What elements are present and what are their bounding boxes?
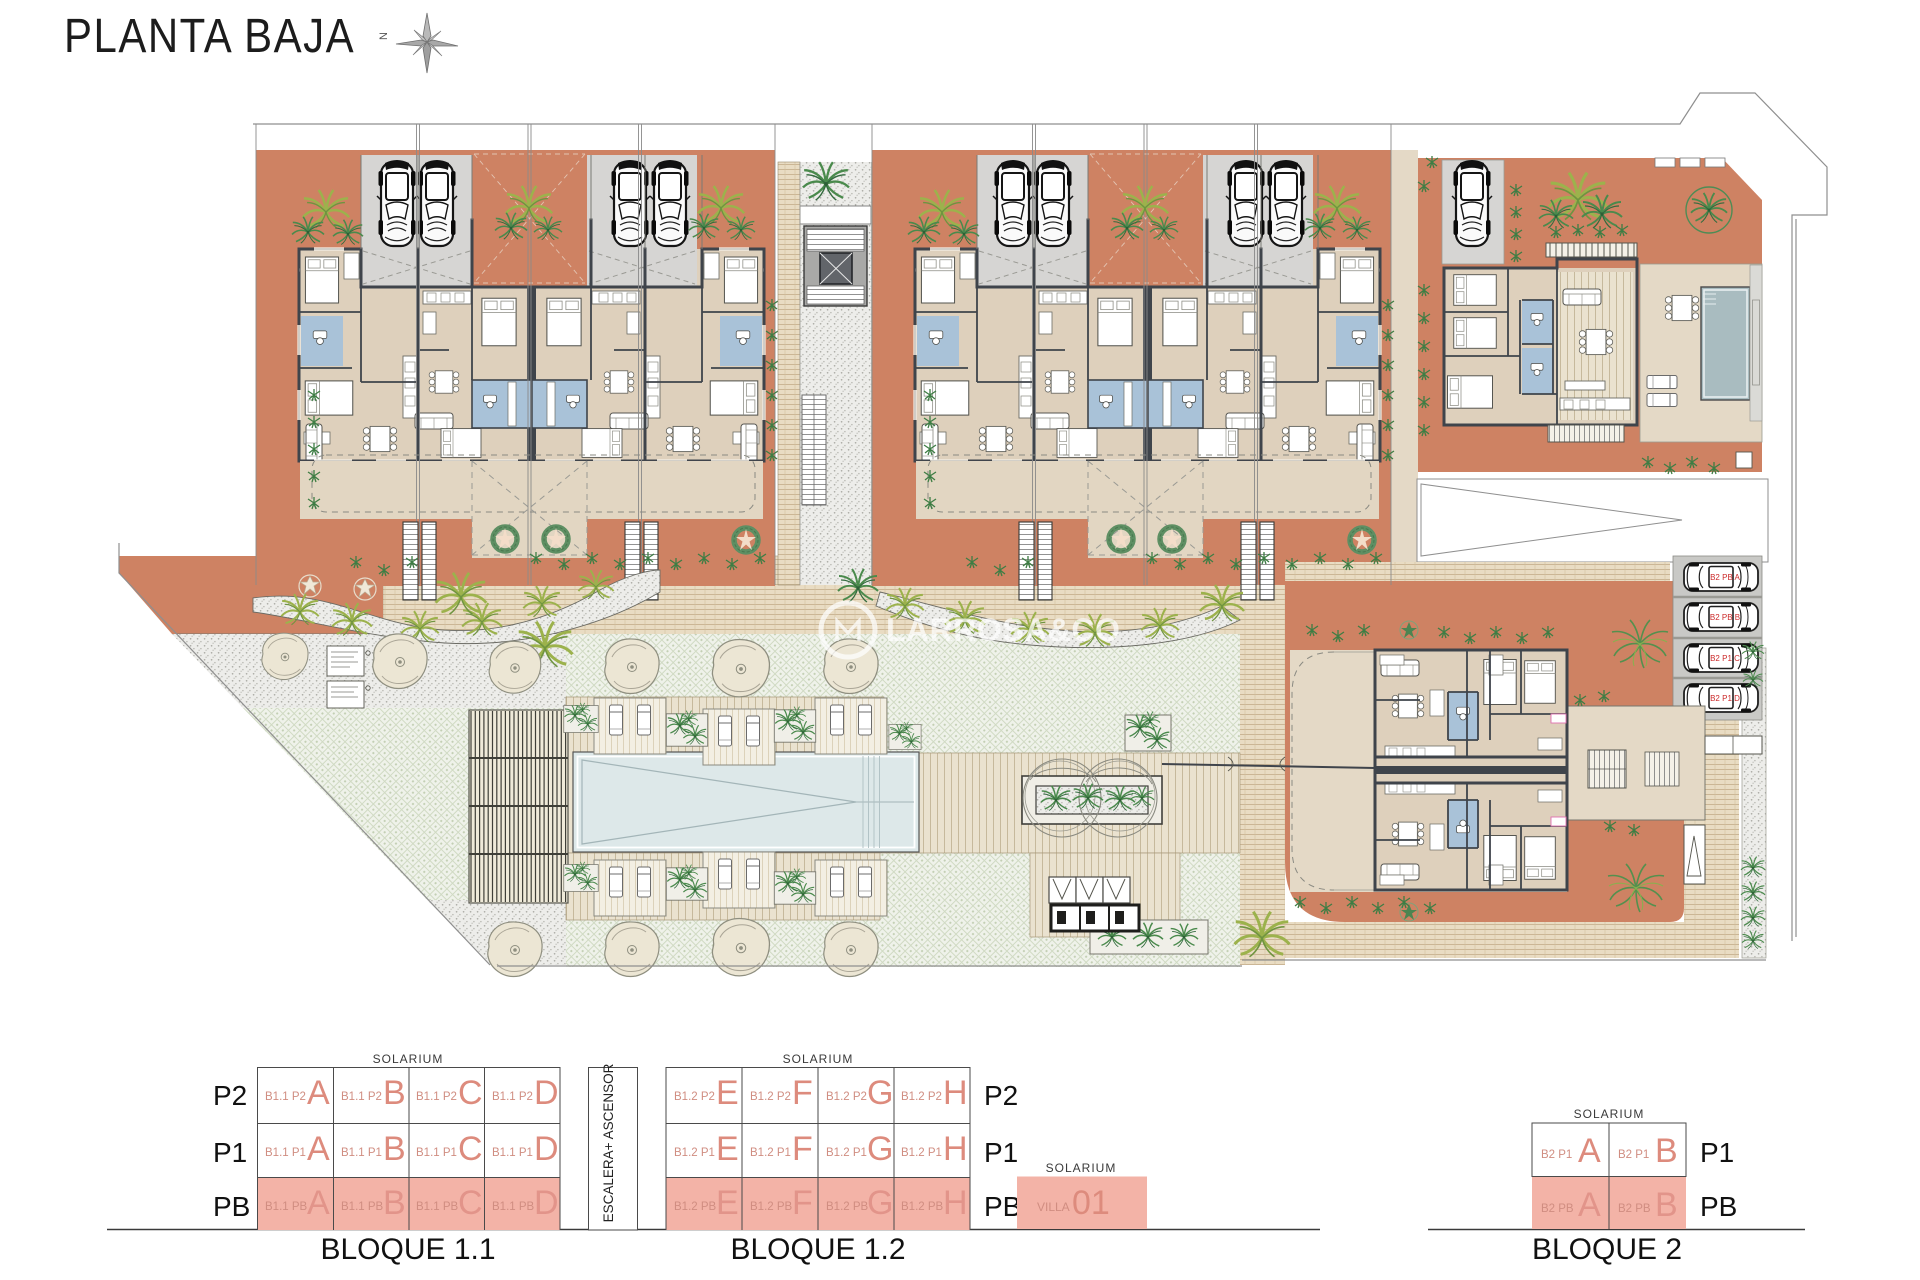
svg-text:B2 P1: B2 P1 [1618,1149,1649,1161]
svg-text:A: A [1578,1186,1601,1224]
svg-text:B2 PB B: B2 PB B [1710,613,1740,622]
svg-text:B1.1 PB: B1.1 PB [492,1201,535,1213]
svg-text:LARROSA&CO: LARROSA&CO [886,612,1120,648]
svg-text:P1: P1 [213,1137,247,1168]
svg-text:B1.1 P2: B1.1 P2 [341,1091,382,1103]
svg-text:C: C [458,1074,483,1112]
svg-text:F: F [792,1074,813,1112]
svg-text:P2: P2 [213,1080,247,1111]
svg-text:B1.2 PB: B1.2 PB [901,1201,944,1213]
svg-text:B2 P1: B2 P1 [1541,1149,1572,1161]
svg-text:A: A [307,1184,330,1222]
svg-text:B1.2 P1: B1.2 P1 [901,1147,942,1159]
svg-text:H: H [943,1074,968,1112]
svg-text:C: C [458,1184,483,1222]
svg-text:A: A [1578,1132,1601,1170]
svg-text:B2 PB: B2 PB [1618,1203,1651,1215]
svg-text:R E A L E S T A T E: R E A L E S T A T E [888,651,1058,662]
svg-text:PB: PB [984,1191,1021,1222]
svg-text:B1.1 P2: B1.1 P2 [416,1091,457,1103]
svg-text:B1.1 P1: B1.1 P1 [341,1147,382,1159]
svg-text:B1.1 P1: B1.1 P1 [416,1147,457,1159]
svg-text:B1.1 P2: B1.1 P2 [265,1091,306,1103]
svg-text:A: A [307,1130,330,1168]
svg-text:SOLARIUM: SOLARIUM [1046,1161,1117,1175]
svg-text:F: F [792,1130,813,1168]
svg-text:BLOQUE 1.1: BLOQUE 1.1 [320,1233,495,1266]
svg-text:H: H [943,1184,968,1222]
svg-text:B1.2 P2: B1.2 P2 [674,1091,715,1103]
svg-text:01: 01 [1072,1184,1110,1222]
svg-text:PB: PB [213,1191,250,1222]
svg-text:H: H [943,1130,968,1168]
svg-text:E: E [716,1074,739,1112]
svg-text:G: G [867,1074,893,1112]
svg-text:E: E [716,1130,739,1168]
svg-text:G: G [867,1184,893,1222]
svg-text:B2 P1 D: B2 P1 D [1710,694,1740,703]
svg-text:N: N [378,32,390,40]
svg-text:B1.1 P1: B1.1 P1 [492,1147,533,1159]
svg-text:A: A [307,1074,330,1112]
svg-text:B: B [383,1074,406,1112]
svg-text:B: B [1655,1186,1678,1224]
svg-text:PB: PB [1700,1191,1737,1222]
svg-text:B: B [383,1130,406,1168]
svg-text:B1.2 P1: B1.2 P1 [674,1147,715,1159]
svg-text:P1: P1 [1700,1137,1734,1168]
svg-text:B1.2 P2: B1.2 P2 [750,1091,791,1103]
svg-text:SOLARIUM: SOLARIUM [1574,1107,1645,1121]
svg-text:B1.2 PB: B1.2 PB [750,1201,793,1213]
svg-text:ESCALERA+ ASCENSOR: ESCALERA+ ASCENSOR [601,1063,616,1222]
svg-text:B1.2 P2: B1.2 P2 [826,1091,867,1103]
svg-text:SOLARIUM: SOLARIUM [783,1052,854,1066]
svg-text:C: C [458,1130,483,1168]
svg-text:B2 PB A: B2 PB A [1710,573,1740,582]
svg-text:BLOQUE 2: BLOQUE 2 [1532,1233,1682,1266]
svg-text:E: E [716,1184,739,1222]
svg-text:B1.2 P1: B1.2 P1 [826,1147,867,1159]
svg-text:B1.1 P1: B1.1 P1 [265,1147,306,1159]
svg-text:VILLA: VILLA [1037,1200,1070,1214]
svg-text:B1.1 PB: B1.1 PB [265,1201,308,1213]
svg-text:P1: P1 [984,1137,1018,1168]
svg-text:G: G [867,1130,893,1168]
svg-text:D: D [534,1184,559,1222]
svg-text:B1.2 P1: B1.2 P1 [750,1147,791,1159]
svg-text:PLANTA BAJA: PLANTA BAJA [64,8,355,62]
svg-text:SOLARIUM: SOLARIUM [373,1052,444,1066]
svg-text:P2: P2 [984,1080,1018,1111]
svg-text:D: D [534,1074,559,1112]
svg-text:B1.1 PB: B1.1 PB [341,1201,384,1213]
svg-text:B1.2 PB: B1.2 PB [826,1201,869,1213]
svg-text:D: D [534,1130,559,1168]
svg-text:B: B [1655,1132,1678,1170]
svg-text:F: F [792,1184,813,1222]
svg-text:B2 PB: B2 PB [1541,1203,1574,1215]
svg-text:B1.2 PB: B1.2 PB [674,1201,717,1213]
svg-text:BLOQUE 1.2: BLOQUE 1.2 [730,1233,905,1266]
svg-text:B: B [383,1184,406,1222]
svg-text:B1.1 P2: B1.1 P2 [492,1091,533,1103]
svg-text:B1.2 P2: B1.2 P2 [901,1091,942,1103]
svg-text:B1.1 PB: B1.1 PB [416,1201,459,1213]
svg-text:B2 P1 C: B2 P1 C [1710,654,1740,663]
